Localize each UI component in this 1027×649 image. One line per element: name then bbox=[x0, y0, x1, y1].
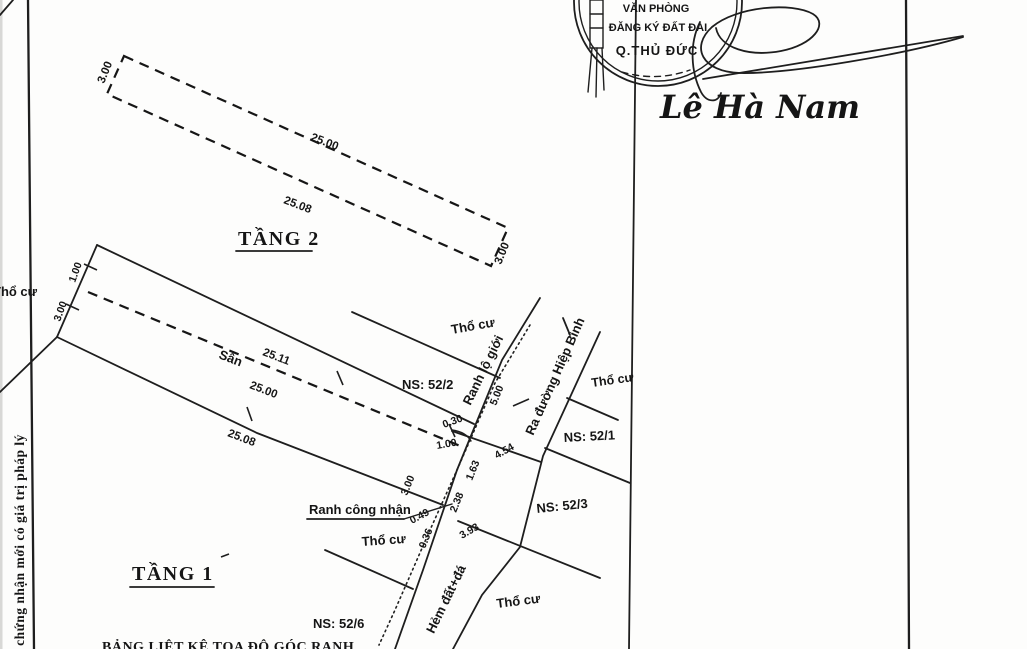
road-dim-454: 4.54 bbox=[493, 441, 517, 462]
road-dim-393: 3.93 bbox=[458, 521, 482, 542]
stamp-dashes bbox=[622, 70, 690, 77]
stamp-line2: ĐĂNG KÝ ĐẤT ĐAI bbox=[609, 21, 707, 34]
office-stamp: VĂN PHÒNG ĐĂNG KÝ ĐẤT ĐAI Q.THỦ ĐỨC bbox=[574, 0, 742, 97]
floor1-title: TẦNG 1 bbox=[132, 561, 214, 585]
survey-drawing: VĂN PHÒNG ĐĂNG KÝ ĐẤT ĐAI Q.THỦ ĐỨC Lê H… bbox=[0, 0, 1027, 649]
tho-cu-bottom: Thổ cư bbox=[496, 591, 542, 611]
parcel-ns52-1: NS: 52/1 bbox=[563, 427, 615, 445]
tho-cu-left: Thổ cư bbox=[0, 284, 38, 299]
road-dim-tick bbox=[513, 399, 529, 406]
yard-dim-mid: 25.00 bbox=[248, 380, 279, 402]
dim-030: 0.30 bbox=[441, 412, 464, 430]
center-column-line bbox=[629, 0, 636, 649]
dim-036: 0.36 bbox=[417, 527, 436, 551]
plot-left-cap bbox=[57, 245, 97, 337]
street-label: Ra đường Hiệp Bình bbox=[522, 315, 587, 437]
yard-tick bbox=[337, 371, 343, 385]
parcel-52-6-boundary bbox=[325, 550, 413, 589]
bottom-caption: BẢNG LIỆT KÊ TỌA ĐỘ GÓC RANH bbox=[102, 638, 354, 649]
floor2-dim-left: 3.00 bbox=[96, 60, 116, 85]
recognized-boundary-label: Ranh công nhận bbox=[309, 502, 411, 517]
parcel-ns52-3: NS: 52/3 bbox=[536, 496, 589, 516]
parcel-ns52-6: NS: 52/6 bbox=[313, 616, 364, 631]
parcel-52-1-52-3-boundary bbox=[545, 448, 630, 483]
dim-238: 2.38 bbox=[448, 491, 467, 515]
floor2-dim-bottom: 25.08 bbox=[282, 195, 314, 217]
dim-163: 1.63 bbox=[464, 459, 483, 483]
left-frame-line bbox=[28, 0, 34, 649]
ribbon-band bbox=[590, 0, 603, 48]
margin-texts: y chứng nhận mới có giá trị pháp lý BẢNG… bbox=[12, 434, 354, 649]
side-note: y chứng nhận mới có giá trị pháp lý bbox=[12, 434, 27, 649]
plot-upper-edge bbox=[97, 245, 474, 424]
floor2-dim-top: 25.00 bbox=[309, 132, 340, 154]
floor2-title: TẦNG 2 bbox=[238, 226, 320, 250]
ribbon-tassel bbox=[588, 48, 604, 97]
plot-lower-edge bbox=[57, 337, 443, 505]
floor2-dim-right: 3.00 bbox=[493, 241, 513, 266]
parcel-wedge-line bbox=[0, 337, 57, 392]
tho-cu-right: Thổ cư bbox=[590, 370, 635, 390]
cap-dim-bottom: 3.00 bbox=[52, 300, 70, 323]
stamp-line3: Q.THỦ ĐỨC bbox=[616, 43, 699, 58]
parcel-ns52-2: NS: 52/2 bbox=[402, 377, 453, 392]
lower-edge-tick bbox=[247, 407, 252, 421]
yard-dashed-line bbox=[88, 292, 465, 448]
stamp-ribbon bbox=[588, 0, 604, 97]
floor1-mark bbox=[221, 554, 229, 557]
parcel-labels: Thổ cư Thổ cư Thổ cư Thổ cư Thổ cư NS: 5… bbox=[0, 284, 635, 631]
stamp-line1: VĂN PHÒNG bbox=[623, 2, 690, 15]
scan-edge bbox=[0, 0, 3, 649]
right-column-line bbox=[906, 0, 909, 649]
signature-name: Lê Hà Nam bbox=[659, 88, 860, 126]
yard-label: Sân bbox=[217, 347, 245, 370]
alley-label: Hẻm đất+đá bbox=[423, 562, 469, 636]
tho-cu-upper: Thổ cư bbox=[450, 314, 497, 337]
parcel-52-1-top-boundary bbox=[567, 398, 618, 420]
dim-100: 1.00 bbox=[435, 437, 457, 452]
tho-cu-mid: Thổ cư bbox=[361, 531, 407, 549]
floor2-plan: 3.00 25.00 25.08 3.00 TẦNG 2 bbox=[96, 56, 513, 266]
